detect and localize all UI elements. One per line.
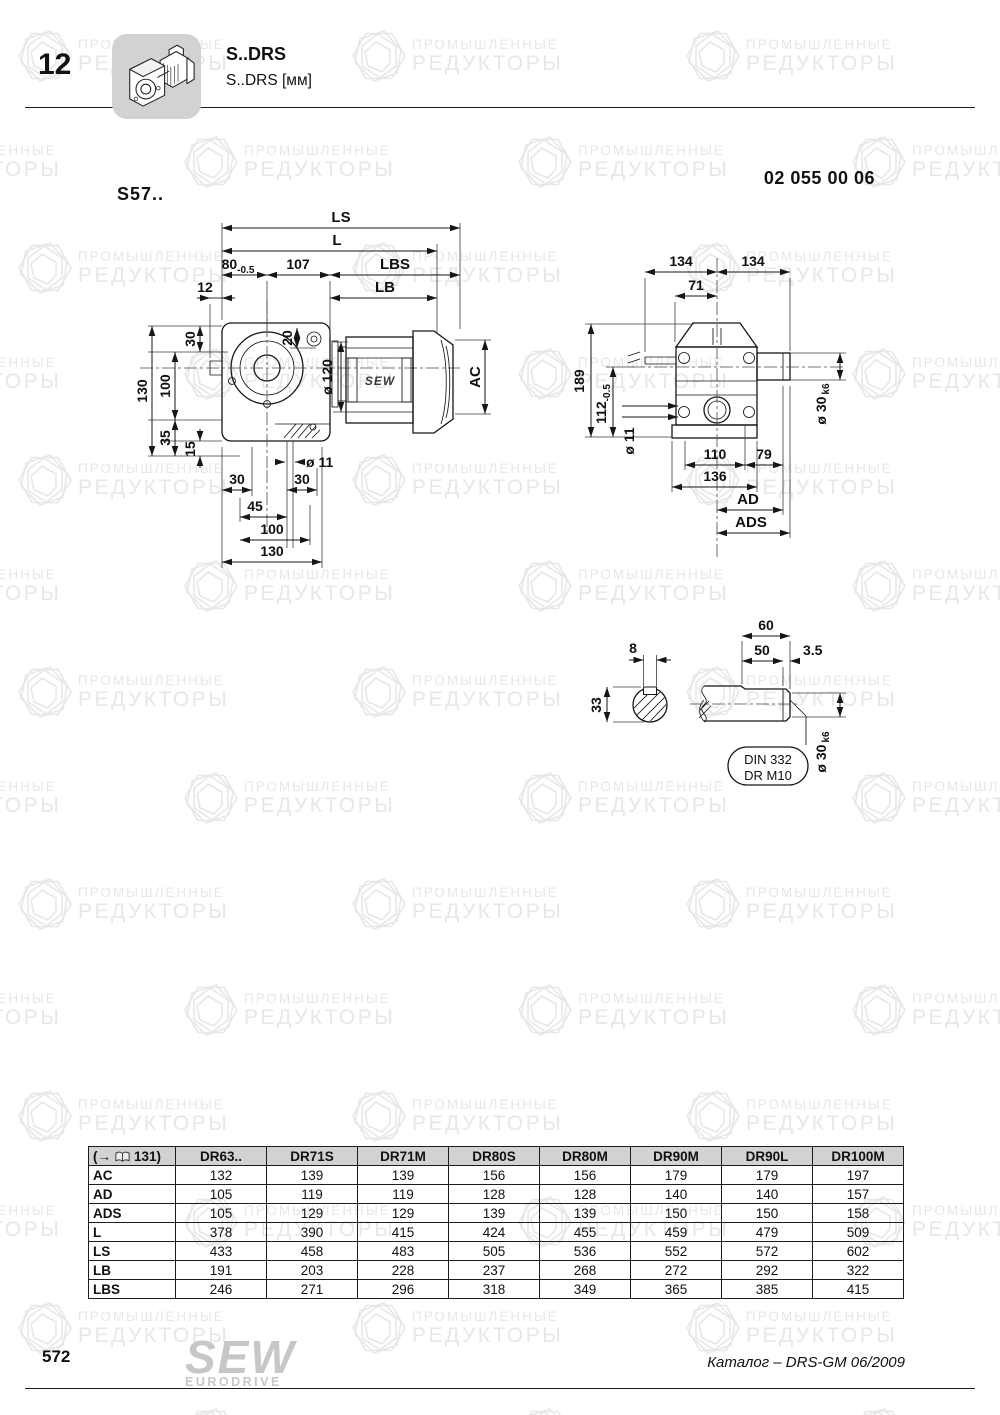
- dim-label: 130: [134, 379, 150, 403]
- dimension-value: 246: [176, 1280, 267, 1299]
- dimension-value: 156: [449, 1166, 540, 1185]
- column-header: DR80M: [540, 1147, 631, 1166]
- dimension-value: 128: [540, 1185, 631, 1204]
- column-header: DR90M: [631, 1147, 722, 1166]
- front-view-drawing: SEW LS L 80-0.5 107 LBS 12 LB 30: [134, 209, 491, 568]
- ref-arrow: (→: [93, 1149, 111, 1164]
- dim-label: 79: [756, 446, 772, 462]
- column-header: DR100M: [813, 1147, 904, 1166]
- dim-label: 12: [197, 279, 213, 295]
- dim-label: ø 120: [319, 359, 335, 395]
- dimension-value: 150: [722, 1204, 813, 1223]
- dimension-value: 272: [631, 1261, 722, 1280]
- table-header-row: (→ 131) DR63..DR71SDR71MDR80SDR80MDR90MD…: [89, 1147, 904, 1166]
- dimension-value: 139: [358, 1166, 449, 1185]
- dimension-value: 378: [176, 1223, 267, 1242]
- dimension-value: 458: [267, 1242, 358, 1261]
- dimension-value: 132: [176, 1166, 267, 1185]
- dimension-value: 459: [631, 1223, 722, 1242]
- catalog-page: ПРОМЫШЛЕННЫЕ РЕДУКТОРЫ ПРОМЫШЛЕННЫЕ РЕДУ…: [0, 0, 1000, 1415]
- row-label: AD: [89, 1185, 176, 1204]
- dim-label: 50: [754, 642, 770, 658]
- dimension-value: 105: [176, 1204, 267, 1223]
- dim-label: LB: [375, 279, 395, 296]
- dim-label: 71: [688, 277, 704, 293]
- dim-label: ø 30k6: [813, 731, 832, 773]
- dimension-value: 390: [267, 1223, 358, 1242]
- dim-label: 30: [294, 471, 310, 487]
- dim-label: 100: [157, 374, 173, 398]
- column-header: DR71S: [267, 1147, 358, 1166]
- dim-label: 130: [260, 543, 284, 559]
- table-row: L378390415424455459479509: [89, 1223, 904, 1242]
- dimension-value: 572: [722, 1242, 813, 1261]
- dim-label: LBS: [380, 256, 410, 273]
- dimension-value: 179: [722, 1166, 813, 1185]
- column-header: DR71M: [358, 1147, 449, 1166]
- din-note-line1: DIN 332: [744, 752, 792, 767]
- gearmotor-icon: [112, 34, 201, 119]
- sew-eurodrive-logo: SEW EURODRIVE: [185, 1338, 296, 1388]
- dim-label: L: [332, 232, 341, 249]
- dimension-value: 483: [358, 1242, 449, 1261]
- dim-label: 112-0.5: [593, 384, 613, 424]
- row-label: LS: [89, 1242, 176, 1261]
- dim-label: AD: [737, 491, 759, 508]
- column-header: DR80S: [449, 1147, 540, 1166]
- dimension-value: 424: [449, 1223, 540, 1242]
- motor-brand-label: SEW: [365, 374, 396, 388]
- ref-page: 131): [134, 1149, 161, 1164]
- dimension-value: 455: [540, 1223, 631, 1242]
- dim-label: 100: [260, 521, 284, 537]
- dimension-value: 268: [540, 1261, 631, 1280]
- dimension-value: 150: [631, 1204, 722, 1223]
- dimension-value: 139: [449, 1204, 540, 1223]
- row-label: ADS: [89, 1204, 176, 1223]
- dimension-value: 139: [267, 1166, 358, 1185]
- dimension-value: 296: [358, 1280, 449, 1299]
- dimension-value: 128: [449, 1185, 540, 1204]
- dim-label: 134: [741, 253, 765, 269]
- dim-label: 107: [286, 256, 310, 272]
- dimension-value: 349: [540, 1280, 631, 1299]
- table-row: AD105119119128128140140157: [89, 1185, 904, 1204]
- dim-label: 136: [703, 468, 727, 484]
- dim-label: ø 11: [306, 454, 333, 470]
- side-view-drawing: 134 134 71 189 112-0.5 ø 11 ø 30k6 110 7…: [571, 253, 846, 560]
- dimension-value: 179: [631, 1166, 722, 1185]
- dim-label: 134: [669, 253, 693, 269]
- dimension-value: 536: [540, 1242, 631, 1261]
- book-icon: [114, 1150, 131, 1163]
- dim-label: 15: [182, 441, 198, 457]
- series-label: S57..: [117, 184, 164, 205]
- page-number: 572: [42, 1347, 70, 1367]
- dimension-value: 139: [540, 1204, 631, 1223]
- table-body: AC132139139156156179179197AD105119119128…: [89, 1166, 904, 1299]
- logo-sew-text: SEW: [185, 1338, 296, 1377]
- dimension-value: 158: [813, 1204, 904, 1223]
- dimension-value: 140: [722, 1185, 813, 1204]
- row-label: LB: [89, 1261, 176, 1280]
- dim-label: 45: [247, 498, 263, 514]
- dimension-value: 505: [449, 1242, 540, 1261]
- dim-label: 3.5: [803, 642, 823, 658]
- dimension-value: 237: [449, 1261, 540, 1280]
- dimension-value: 479: [722, 1223, 813, 1242]
- dimension-value: 129: [358, 1204, 449, 1223]
- dim-label: 35: [157, 430, 173, 446]
- logo-eurodrive-text: EURODRIVE: [185, 1377, 296, 1388]
- din-note-line2: DR M10: [744, 768, 792, 783]
- dimension-value: 119: [267, 1185, 358, 1204]
- dimension-value: 228: [358, 1261, 449, 1280]
- page-title: S..DRS: [226, 44, 286, 65]
- column-header: DR90L: [722, 1147, 813, 1166]
- dimension-value: 157: [813, 1185, 904, 1204]
- dimension-value: 140: [631, 1185, 722, 1204]
- chapter-number: 12: [38, 48, 71, 82]
- column-header: DR63..: [176, 1147, 267, 1166]
- dimension-value: 602: [813, 1242, 904, 1261]
- dim-label: 80-0.5: [222, 256, 255, 276]
- dim-label: 110: [704, 446, 727, 462]
- dimension-table: (→ 131) DR63..DR71SDR71MDR80SDR80MDR90MD…: [88, 1146, 904, 1299]
- row-label: LBS: [89, 1280, 176, 1299]
- row-label: L: [89, 1223, 176, 1242]
- dimension-value: 415: [358, 1223, 449, 1242]
- page-subtitle: S..DRS [мм]: [226, 72, 312, 90]
- table-row: LBS246271296318349365385415: [89, 1280, 904, 1299]
- dim-label: ø 30k6: [813, 383, 832, 425]
- dimension-value: 365: [631, 1280, 722, 1299]
- row-label: AC: [89, 1166, 176, 1185]
- dim-label: 8: [629, 640, 637, 656]
- table-row: LB191203228237268272292322: [89, 1261, 904, 1280]
- dim-label: 33: [588, 697, 604, 713]
- dimension-value: 385: [722, 1280, 813, 1299]
- dimension-value: 203: [267, 1261, 358, 1280]
- document-number: 02 055 00 06: [640, 168, 875, 189]
- dimension-value: 433: [176, 1242, 267, 1261]
- table-row: AC132139139156156179179197: [89, 1166, 904, 1185]
- table-row: ADS105129129139139150150158: [89, 1204, 904, 1223]
- dimension-value: 197: [813, 1166, 904, 1185]
- dim-label: 30: [229, 471, 245, 487]
- dimension-value: 156: [540, 1166, 631, 1185]
- dim-label: LS: [331, 209, 350, 226]
- table-row: LS433458483505536552572602: [89, 1242, 904, 1261]
- dimension-value: 271: [267, 1280, 358, 1299]
- dimension-value: 509: [813, 1223, 904, 1242]
- dimension-value: 322: [813, 1261, 904, 1280]
- dim-label: 60: [758, 617, 774, 633]
- table-ref-cell: (→ 131): [89, 1147, 176, 1166]
- dim-label: 189: [571, 369, 587, 393]
- dimension-value: 191: [176, 1261, 267, 1280]
- dimension-value: 415: [813, 1280, 904, 1299]
- catalog-reference: Каталог – DRS-GM 06/2009: [605, 1354, 905, 1371]
- dimension-value: 119: [358, 1185, 449, 1204]
- dimension-value: 552: [631, 1242, 722, 1261]
- dim-label: 30: [182, 331, 198, 347]
- dimension-value: 318: [449, 1280, 540, 1299]
- dimension-value: 105: [176, 1185, 267, 1204]
- shaft-detail-drawing: 8 33 60 50 3.5 ø 30k6 DIN 332 DR M10: [588, 617, 846, 785]
- dim-label: AC: [467, 366, 484, 388]
- dimension-value: 129: [267, 1204, 358, 1223]
- footer-divider: [25, 1388, 975, 1389]
- dim-label: ø 11: [621, 427, 637, 454]
- dim-label: ADS: [735, 514, 767, 531]
- dim-label: 20: [279, 330, 295, 346]
- dimension-value: 292: [722, 1261, 813, 1280]
